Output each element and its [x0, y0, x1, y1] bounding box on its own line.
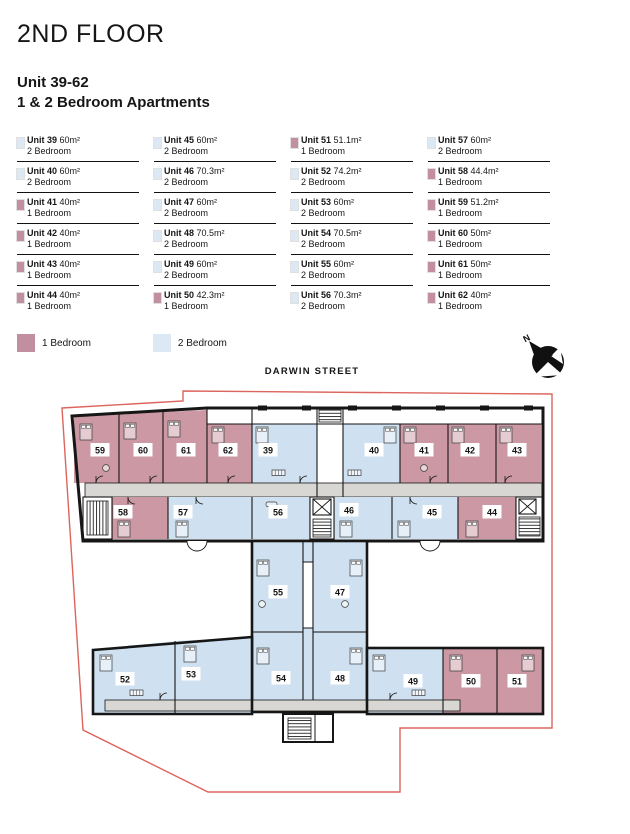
svg-text:41: 41 — [419, 445, 429, 455]
plan-unit-label-61: 61 — [177, 443, 196, 457]
plan-unit-label-54: 54 — [272, 671, 291, 685]
svg-text:53: 53 — [186, 669, 196, 679]
plan-unit-label-50: 50 — [462, 674, 481, 688]
svg-text:55: 55 — [273, 587, 283, 597]
plan-unit-label-62: 62 — [219, 443, 238, 457]
svg-text:54: 54 — [276, 673, 286, 683]
svg-text:42: 42 — [465, 445, 475, 455]
svg-text:39: 39 — [263, 445, 273, 455]
svg-text:46: 46 — [344, 505, 354, 515]
lift-core-right — [516, 497, 543, 539]
plan-unit-label-41: 41 — [415, 443, 434, 457]
plan-unit-label-47: 47 — [331, 585, 350, 599]
plan-unit-label-48: 48 — [331, 671, 350, 685]
north-arrow-icon: N — [521, 332, 564, 378]
plan-unit-label-44: 44 — [483, 505, 502, 519]
top-corridor — [85, 483, 543, 497]
stair-core-bottom — [283, 714, 333, 742]
plan-unit-label-60: 60 — [134, 443, 153, 457]
plan-unit-label-43: 43 — [508, 443, 527, 457]
plan-unit-label-55: 55 — [269, 585, 288, 599]
plan-unit-label-42: 42 — [461, 443, 480, 457]
stair-core-left — [83, 497, 112, 539]
lift-core-center — [310, 497, 334, 539]
street-entry-stairs — [319, 410, 341, 422]
floor-plan: 5960616239404142435857564645445547525354… — [0, 0, 630, 834]
svg-text:61: 61 — [181, 445, 191, 455]
bottom-corridor — [105, 700, 460, 711]
plan-unit-label-52: 52 — [116, 672, 135, 686]
plan-unit-label-40: 40 — [365, 443, 384, 457]
svg-text:50: 50 — [466, 676, 476, 686]
svg-text:48: 48 — [335, 673, 345, 683]
plan-unit-label-56: 56 — [269, 505, 288, 519]
plan-unit-label-57: 57 — [174, 505, 193, 519]
plan-unit-label-45: 45 — [423, 505, 442, 519]
plan-unit-label-49: 49 — [404, 674, 423, 688]
svg-text:56: 56 — [273, 507, 283, 517]
svg-text:44: 44 — [487, 507, 497, 517]
plan-unit-label-58: 58 — [114, 505, 133, 519]
svg-text:51: 51 — [512, 676, 522, 686]
svg-text:45: 45 — [427, 507, 437, 517]
svg-text:40: 40 — [369, 445, 379, 455]
svg-text:47: 47 — [335, 587, 345, 597]
lightwell — [303, 562, 313, 628]
building: 5960616239404142435857564645445547525354… — [72, 406, 543, 743]
plan-unit-label-39: 39 — [259, 443, 278, 457]
svg-text:57: 57 — [178, 507, 188, 517]
plan-unit-label-59: 59 — [91, 443, 110, 457]
svg-text:60: 60 — [138, 445, 148, 455]
svg-text:59: 59 — [95, 445, 105, 455]
svg-text:62: 62 — [223, 445, 233, 455]
street-label: DARWIN STREET — [265, 366, 360, 377]
plan-unit-label-46: 46 — [340, 503, 359, 517]
plan-unit-label-51: 51 — [508, 674, 527, 688]
plan-unit-label-53: 53 — [182, 667, 201, 681]
svg-text:43: 43 — [512, 445, 522, 455]
svg-text:49: 49 — [408, 676, 418, 686]
svg-text:52: 52 — [120, 674, 130, 684]
svg-text:58: 58 — [118, 507, 128, 517]
